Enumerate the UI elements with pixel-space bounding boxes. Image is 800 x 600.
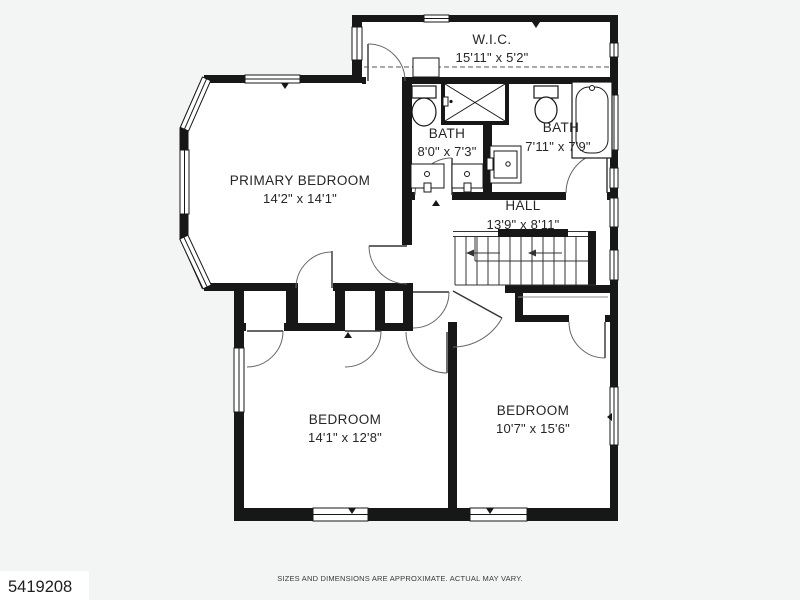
room-name: BATH [429, 126, 466, 141]
room-dims: 14'2" x 14'1" [263, 191, 337, 206]
room-dims: 13'9" x 8'11" [487, 217, 560, 232]
dresser [413, 58, 439, 77]
room-name: BEDROOM [309, 412, 382, 427]
room-dims: 10'7" x 15'6" [496, 421, 570, 436]
toilet [534, 86, 558, 123]
floorplan-drawing: W.I.C. 15'11" x 5'2" BATH 8'0" x 7'3" BA… [0, 0, 800, 600]
room-name: PRIMARY BEDROOM [230, 173, 371, 188]
toilet [412, 86, 436, 126]
floorplan-page: W.I.C. 15'11" x 5'2" BATH 8'0" x 7'3" BA… [0, 0, 800, 600]
room-name: W.I.C. [472, 32, 511, 47]
room-name: BATH [543, 120, 580, 135]
shower [443, 82, 507, 123]
room-name: HALL [505, 198, 540, 213]
room-dims: 15'11" x 5'2" [456, 50, 529, 65]
footer-disclaimer: SIZES AND DIMENSIONS ARE APPROXIMATE. AC… [277, 574, 523, 583]
room-dims: 8'0" x 7'3" [417, 144, 476, 159]
room-dims: 7'11" x 7'9" [525, 139, 591, 154]
watermark-id: 5419208 [8, 578, 72, 596]
vanity [487, 146, 521, 183]
room-name: BEDROOM [497, 403, 570, 418]
room-dims: 14'1" x 12'8" [308, 430, 382, 445]
